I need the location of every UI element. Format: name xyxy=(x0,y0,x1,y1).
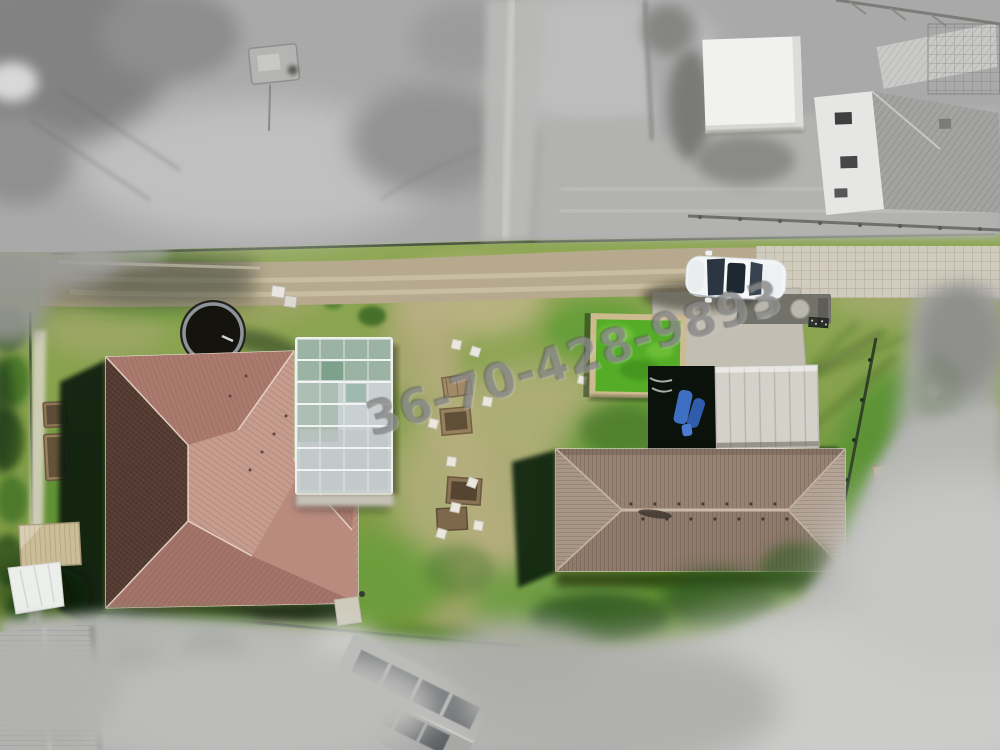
neighbor-window xyxy=(834,188,847,197)
neighbor-window xyxy=(840,156,857,169)
surroundings-top xyxy=(0,0,1000,252)
neighbor-house-wall xyxy=(814,91,884,215)
aerial-photo-canvas xyxy=(0,0,1000,750)
car-rear-window xyxy=(749,262,763,297)
car-mirror xyxy=(705,250,712,255)
right-house-shadow xyxy=(512,450,556,588)
greenhouse xyxy=(296,338,398,512)
car-sunroof xyxy=(726,263,746,294)
neighbor-window xyxy=(835,112,852,125)
neighbor-garage xyxy=(702,36,803,135)
aerial-photo: 36-70-428-9893 xyxy=(0,0,1000,750)
car-mirror xyxy=(705,297,712,302)
tool-shed xyxy=(19,522,81,567)
trellis-grid xyxy=(928,24,1000,94)
beehive-boxes xyxy=(809,317,829,327)
carport-roof xyxy=(715,365,818,449)
